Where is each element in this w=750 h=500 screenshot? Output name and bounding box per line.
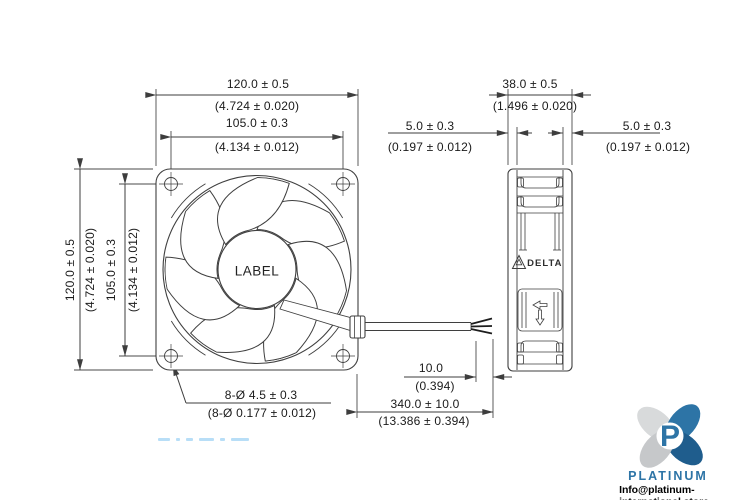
dim-hole-pitch-v-in: (4.134 ± 0.012) (126, 228, 140, 312)
front-view-drawing (148, 158, 492, 370)
dim-wire-length-in: (13.386 ± 0.394) (378, 414, 469, 428)
dim-hole-pitch-h-mm: 105.0 ± 0.3 (226, 116, 288, 130)
dim-front-height-in: (4.724 ± 0.020) (83, 228, 97, 312)
fan-dimension-drawing: 120.0 ± 0.5 (4.724 ± 0.020) 105.0 ± 0.3 … (0, 0, 750, 500)
dim-hole-pitch-v-mm: 105.0 ± 0.3 (104, 239, 118, 301)
dim-front-width-in: (4.724 ± 0.020) (215, 99, 299, 113)
contact-email: Info@platinum-international.store (619, 484, 709, 500)
dim-hole-pitch-h-in: (4.134 ± 0.012) (215, 140, 299, 154)
platinum-logo-text: PLATINUM (628, 469, 708, 483)
callout-mounting-holes-in: (8-Ø 0.177 ± 0.012) (208, 406, 316, 420)
stripped-wires (471, 319, 492, 334)
dim-depth-mm: 38.0 ± 0.5 (502, 77, 557, 91)
dim-depth-in: (1.496 ± 0.020) (493, 99, 577, 113)
watermark (158, 438, 249, 441)
dim-flange-right-in: (0.197 ± 0.012) (606, 140, 690, 154)
dim-flange-left-mm: 5.0 ± 0.3 (406, 119, 454, 133)
dim-front-width-mm: 120.0 ± 0.5 (227, 77, 289, 91)
hub-label: LABEL (235, 264, 280, 279)
side-view-drawing (508, 169, 572, 371)
delta-wordmark: DELTA (527, 258, 562, 268)
dim-strip-length-mm: 10.0 (419, 361, 443, 375)
dim-flange-right-mm: 5.0 ± 0.3 (623, 119, 671, 133)
dim-strip-length-in: (0.394) (415, 379, 454, 393)
dim-flange-left-in: (0.197 ± 0.012) (388, 140, 472, 154)
dim-wire-length-mm: 340.0 ± 10.0 (390, 397, 459, 411)
dim-front-height-mm: 120.0 ± 0.5 (63, 239, 77, 301)
platinum-logo-initial: P (660, 420, 680, 454)
callout-mounting-holes-mm: 8-Ø 4.5 ± 0.3 (225, 388, 298, 402)
